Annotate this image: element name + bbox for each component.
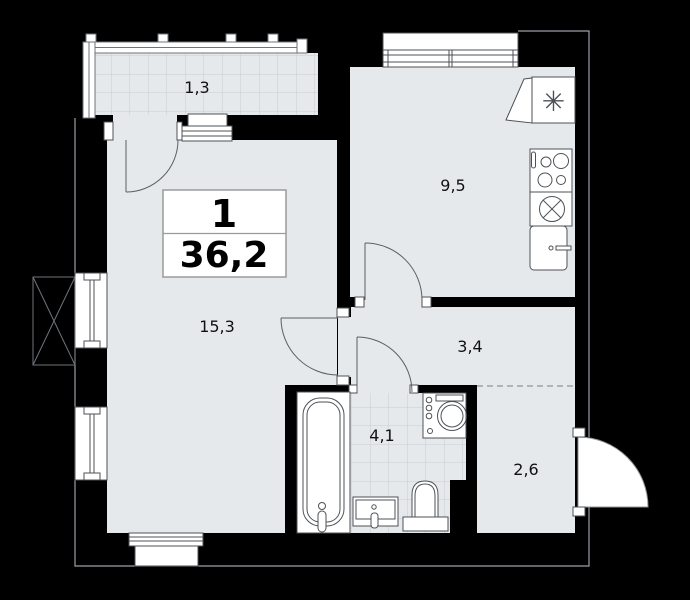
window-sill — [188, 114, 227, 126]
bathtub-drain — [319, 503, 326, 510]
kitchen-doorway-gap — [363, 297, 425, 307]
glazing-end-post — [297, 39, 307, 53]
living-doorway-gap — [338, 317, 351, 377]
room-label-kitchen: 9,5 — [440, 176, 465, 195]
window-cap — [84, 407, 100, 414]
unit-total-area: 36,2 — [180, 235, 269, 276]
toilet-bowl — [412, 481, 438, 517]
door-jamb — [573, 428, 585, 437]
duct-wall — [450, 480, 466, 533]
window-frame — [75, 407, 107, 480]
living-window-lower — [75, 407, 107, 480]
entryway-floor — [477, 385, 575, 533]
bathroom-doorway-gap — [357, 385, 410, 393]
room-label-bathroom: 4,1 — [369, 426, 394, 445]
floorplan-svg: ✳ — [0, 0, 690, 600]
window-cap — [84, 273, 100, 280]
balcony-doorway-gap — [113, 115, 177, 140]
unit-card: 1 36,2 — [163, 190, 286, 277]
glazing-mullion — [86, 34, 96, 42]
counter-handle — [556, 246, 571, 250]
window-sill — [135, 546, 198, 566]
living-window-upper — [75, 273, 107, 348]
window-cap — [84, 341, 100, 348]
kitchen-sink — [530, 192, 572, 226]
room-label-balcony: 1,3 — [184, 78, 209, 97]
kitchen-counter — [530, 226, 571, 270]
door-jamb — [104, 122, 113, 140]
room-label-living: 15,3 — [199, 317, 235, 336]
unit-rooms-count: 1 — [211, 192, 237, 236]
bathtub-tap — [318, 511, 326, 532]
snowflake-icon: ✳ — [542, 85, 565, 118]
glazing-mullion — [158, 34, 168, 42]
room-label-hallway: 3,4 — [457, 337, 482, 356]
room-label-entryway: 2,6 — [513, 460, 538, 479]
balcony-window — [182, 114, 232, 141]
door-jamb — [355, 297, 364, 307]
window-frame — [75, 273, 107, 348]
window-sill — [383, 33, 518, 50]
sink-cabinet — [530, 192, 572, 226]
glazing-mullion — [226, 34, 236, 42]
stove — [530, 149, 572, 192]
sink-tap — [371, 513, 378, 528]
bathroom-sink — [353, 497, 398, 528]
window-frame — [129, 533, 203, 546]
washer-body — [423, 393, 466, 438]
living-window-bottom — [129, 533, 203, 566]
floorplan: ✳ — [0, 0, 690, 600]
stove-handle — [532, 152, 536, 168]
door-jamb — [573, 507, 585, 516]
bathtub — [297, 392, 350, 533]
washing-machine — [423, 393, 467, 438]
door-jamb — [410, 385, 418, 393]
door-jamb — [337, 308, 349, 317]
glazing-mullion — [268, 34, 278, 42]
door-jamb — [177, 122, 182, 140]
door-jamb — [422, 297, 431, 307]
window-frame — [182, 126, 232, 141]
kitchen-window — [383, 33, 518, 67]
toilet-cistern — [403, 517, 448, 531]
window-frame — [383, 50, 518, 67]
window-cap — [84, 473, 100, 480]
door-jamb — [337, 376, 349, 385]
